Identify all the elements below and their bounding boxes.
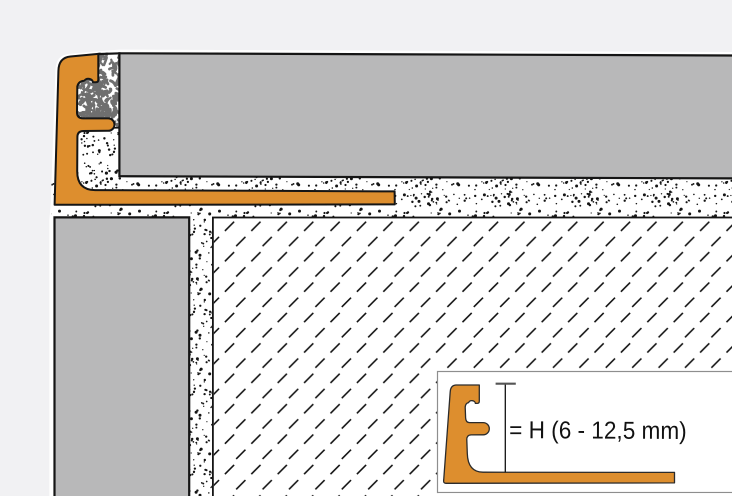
svg-text:= H (6 - 12,5 mm): = H (6 - 12,5 mm) bbox=[509, 417, 687, 445]
